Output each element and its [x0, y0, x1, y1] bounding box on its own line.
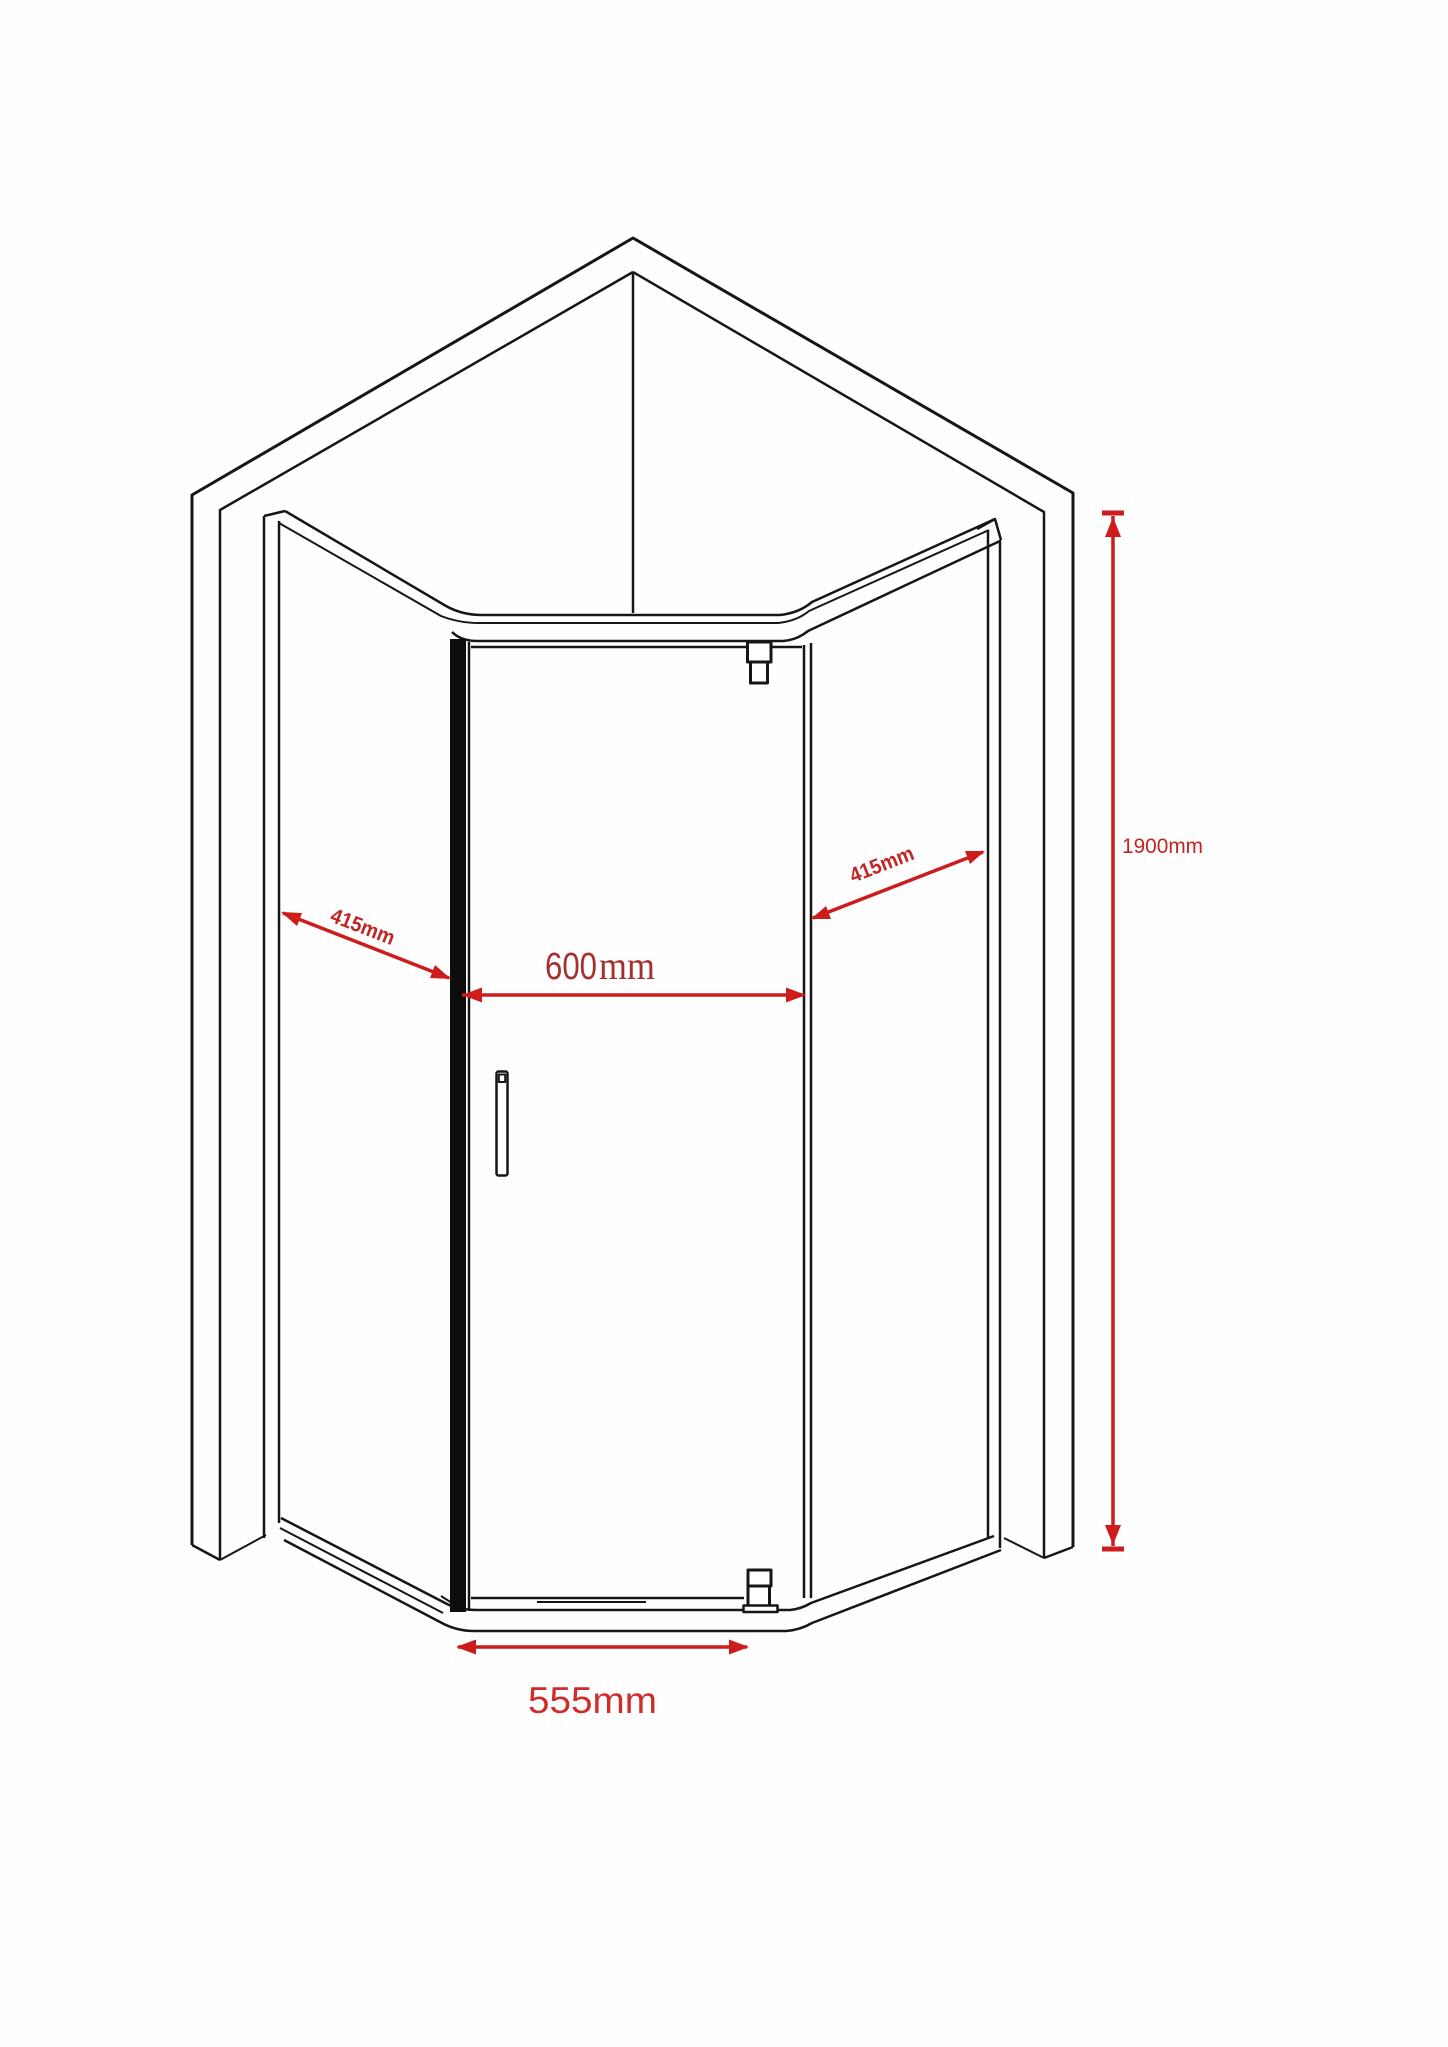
bottom-hinge-plate	[744, 1606, 778, 1613]
top-frame-lower-edge	[452, 541, 1000, 641]
top-frame-outer	[285, 511, 995, 615]
dim-door-opening: 600 mm	[462, 943, 806, 1003]
shower-enclosure-diagram: 415mm 415mm 600 mm 555mm	[0, 0, 1448, 2047]
background-walls	[192, 238, 1073, 1560]
dim-right-panel: 415mm	[811, 842, 985, 919]
dim-base-width: 555mm	[456, 1640, 749, 1722]
dim-right-panel-arrowhead-end	[965, 851, 985, 864]
dim-right-panel-arrowhead-start	[811, 906, 831, 919]
top-hinge-block	[748, 642, 772, 662]
door-handle-mount	[499, 1075, 505, 1083]
dim-base-width-arrowhead-right	[729, 1640, 749, 1655]
dim-left-panel-arrowhead-start	[281, 912, 302, 926]
dim-height-arrowhead-top	[1105, 517, 1121, 537]
wall-inner-edge-left	[220, 272, 633, 1560]
dim-height: 1900mm	[1102, 513, 1203, 1549]
dim-base-width-arrowhead-left	[456, 1640, 476, 1655]
wall-right-bottom-face	[1044, 1547, 1073, 1558]
top-hinge-arm	[751, 662, 768, 683]
door-strike-post	[450, 639, 466, 1612]
floor-line-left	[220, 1535, 266, 1560]
wall-inner-edge-right	[633, 272, 1044, 1558]
floor-line-right	[1004, 1538, 1044, 1558]
dim-height-arrowhead-bottom	[1105, 1525, 1121, 1545]
shower-enclosure-frame	[264, 511, 1001, 1631]
dimension-annotations: 415mm 415mm 600 mm 555mm	[281, 513, 1203, 1721]
wall-left-bottom-face	[192, 1545, 220, 1560]
dim-left-panel-arrowhead-end	[430, 965, 451, 979]
right-wall-post	[977, 519, 1001, 1548]
bottom-hinge-block	[748, 1586, 770, 1606]
door-handle-bar	[497, 1072, 508, 1176]
bottom-hinge	[744, 1570, 778, 1612]
top-hinge	[748, 642, 772, 683]
door-handle	[497, 1072, 508, 1176]
left-wall-post	[264, 511, 285, 1538]
door-hinge-side-edge	[804, 643, 811, 1598]
bottom-frame-top-edge	[281, 1518, 994, 1610]
dim-door-opening-value: 600	[545, 946, 597, 988]
pivot-door	[450, 639, 811, 1612]
bottom-frame-mid	[280, 1528, 443, 1613]
dim-door-opening-unit: mm	[599, 943, 655, 988]
dim-left-panel: 415mm	[281, 904, 451, 979]
dim-height-label: 1900mm	[1122, 835, 1203, 858]
bottom-hinge-arm	[748, 1570, 771, 1586]
drawing-canvas: 415mm 415mm 600 mm 555mm	[0, 0, 1448, 2047]
dim-base-width-label: 555mm	[528, 1680, 657, 1721]
